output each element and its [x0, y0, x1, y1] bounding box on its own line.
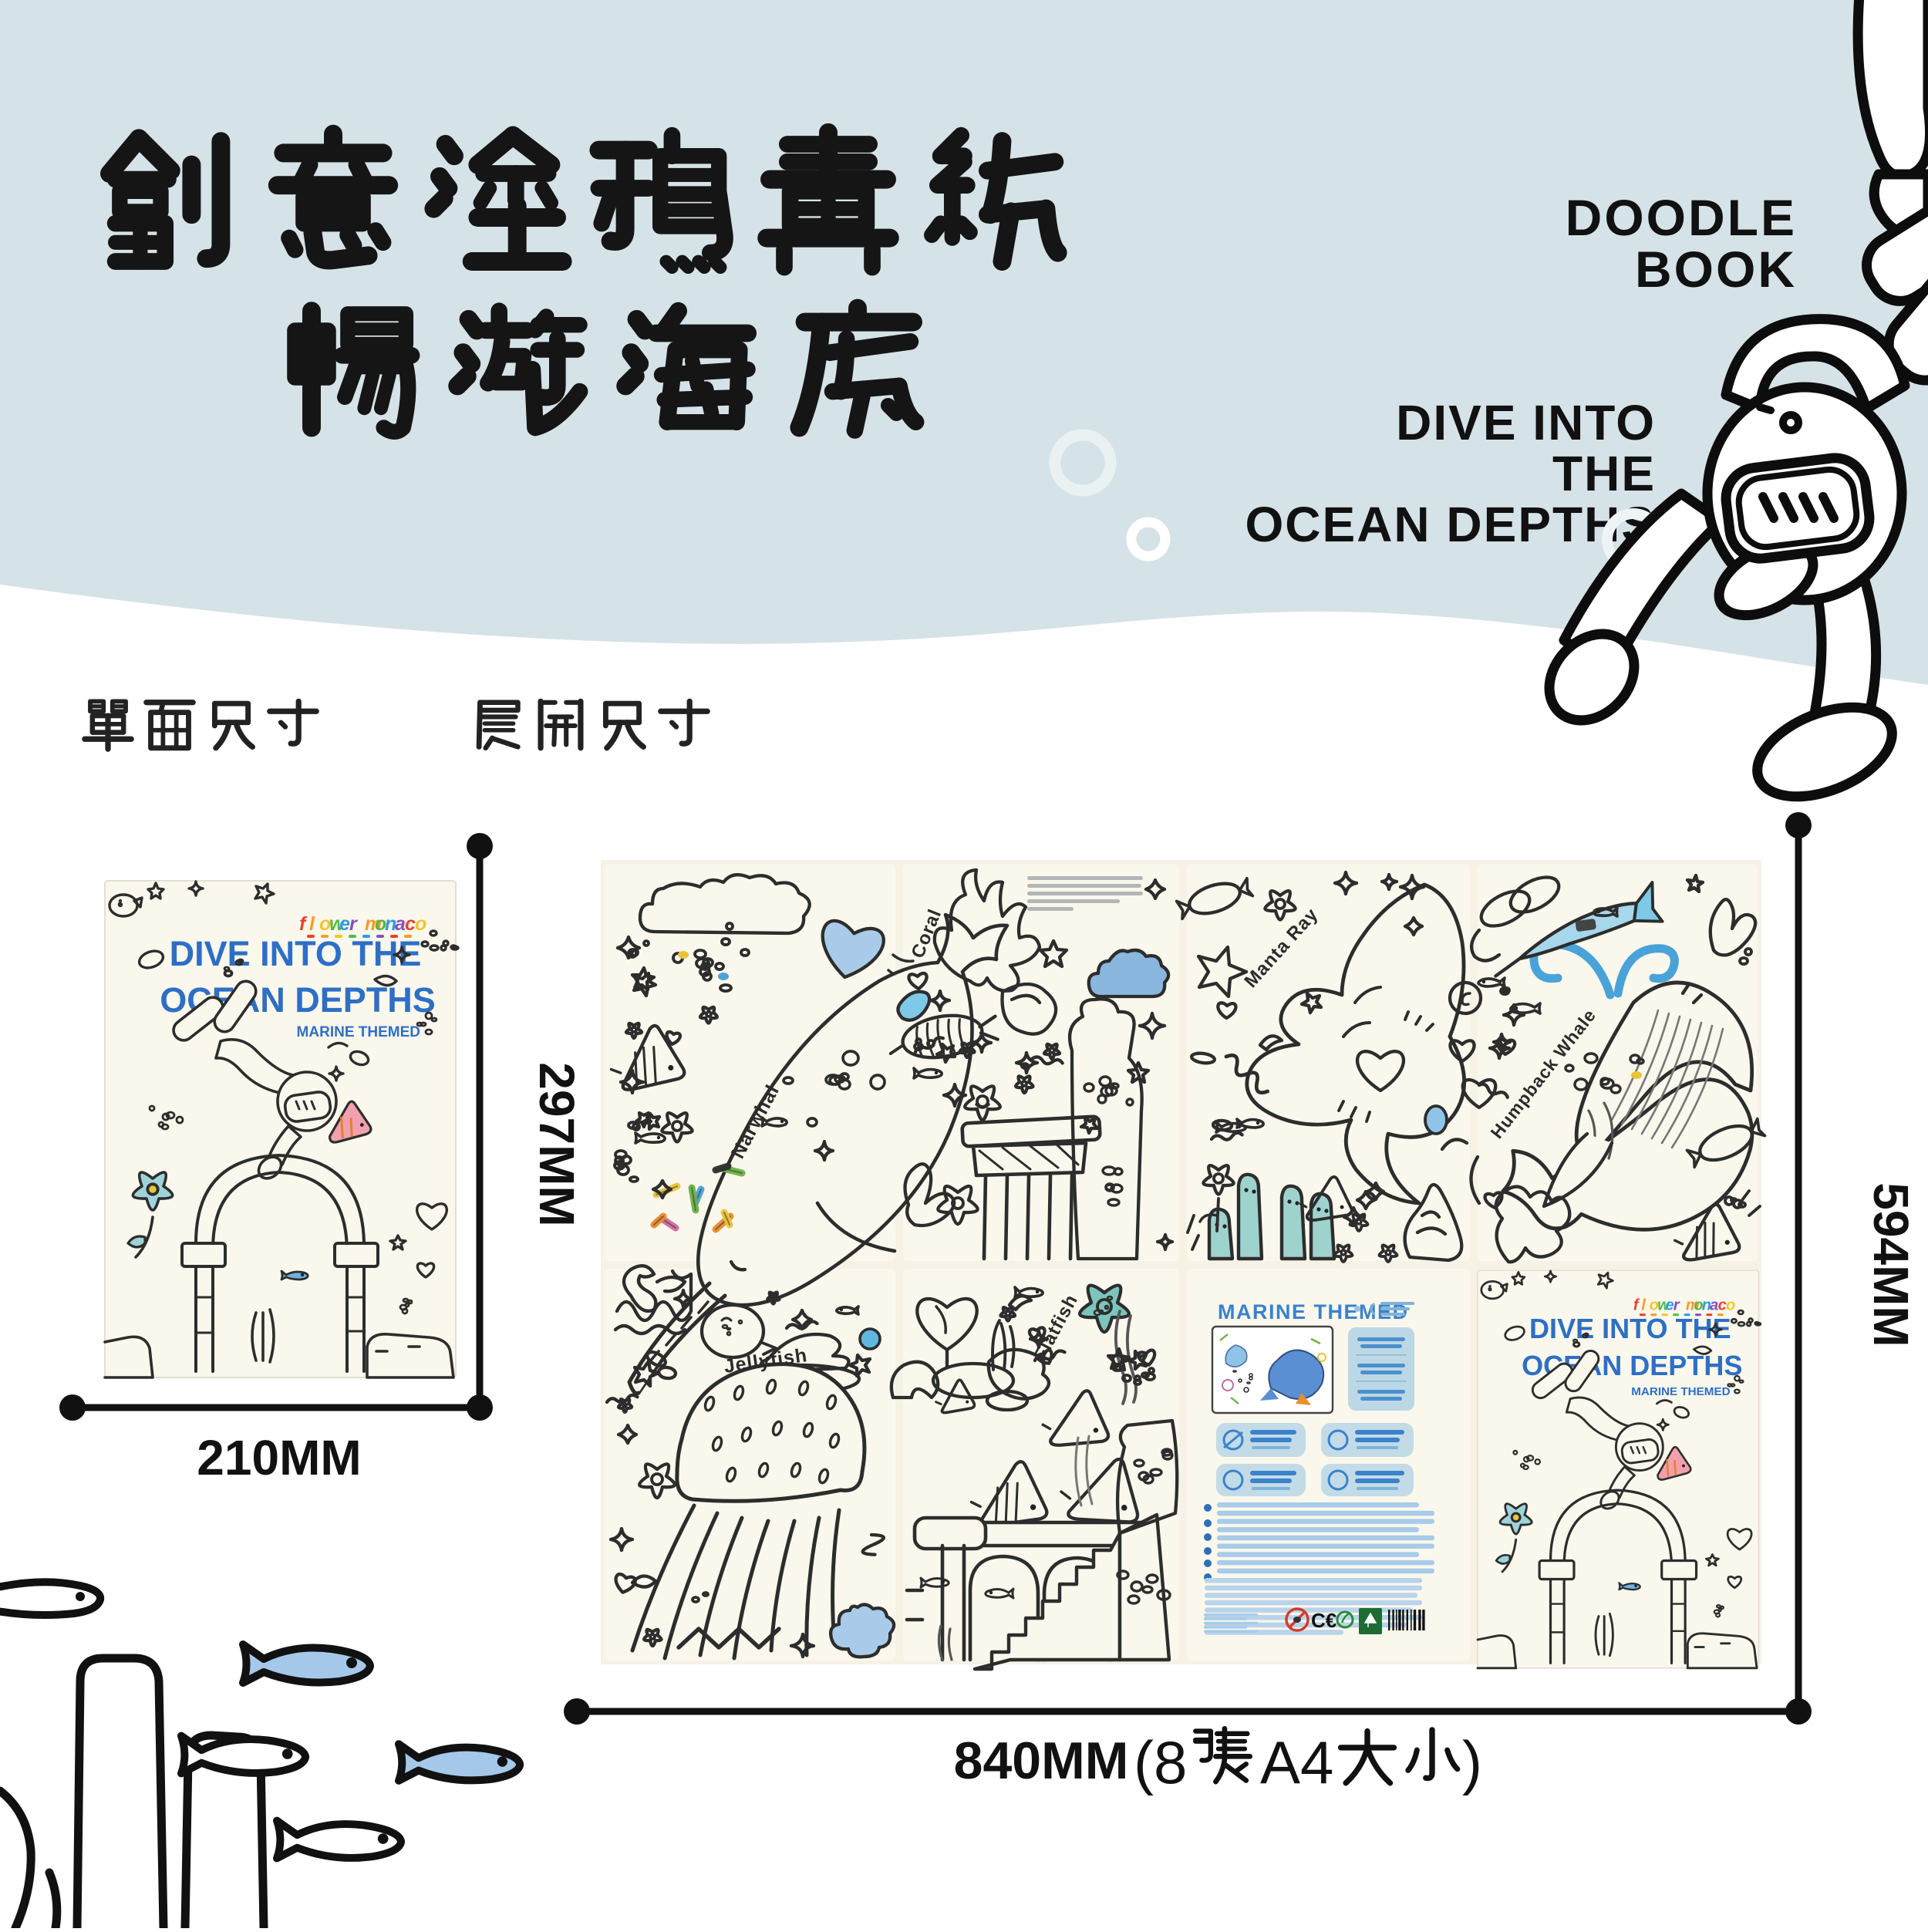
- svg-text:BOOK: BOOK: [1635, 241, 1797, 298]
- svg-text:THE: THE: [1552, 446, 1656, 501]
- svg-text:MARINE THEMED: MARINE THEMED: [1218, 1300, 1409, 1323]
- svg-text:e: e: [1666, 1296, 1674, 1313]
- svg-text:840MM: 840MM: [954, 1731, 1129, 1790]
- svg-text:C€: C€: [1311, 1609, 1336, 1632]
- svg-text:c: c: [1718, 1296, 1727, 1313]
- svg-text:DIVE INTO THE: DIVE INTO THE: [1529, 1313, 1731, 1344]
- svg-text:o: o: [1726, 1296, 1735, 1313]
- svg-text:a: a: [395, 913, 406, 935]
- svg-text:a: a: [1710, 1296, 1718, 1313]
- svg-text:(8: (8: [1134, 1728, 1187, 1796]
- svg-text:r: r: [349, 913, 358, 935]
- svg-text:l: l: [1641, 1296, 1646, 1313]
- svg-text:c: c: [405, 913, 416, 935]
- svg-text:MARINE THEMED: MARINE THEMED: [297, 1024, 420, 1040]
- svg-text:A4: A4: [1260, 1728, 1333, 1796]
- svg-text:DIVE INTO THE: DIVE INTO THE: [170, 934, 422, 973]
- svg-text:r: r: [1674, 1296, 1680, 1313]
- svg-text:297MM: 297MM: [529, 1062, 585, 1226]
- svg-text:e: e: [339, 913, 350, 935]
- svg-text:DOODLE: DOODLE: [1566, 189, 1797, 246]
- svg-text:): ): [1462, 1728, 1482, 1796]
- svg-text:l: l: [309, 913, 315, 935]
- svg-text:o: o: [415, 913, 426, 935]
- svg-text:MARINE THEMED: MARINE THEMED: [1631, 1385, 1730, 1398]
- svg-text:DIVE INTO: DIVE INTO: [1396, 395, 1656, 450]
- svg-text:210MM: 210MM: [197, 1430, 361, 1485]
- svg-text:OCEAN DEPTHS: OCEAN DEPTHS: [1245, 497, 1657, 552]
- svg-text:594MM: 594MM: [1863, 1182, 1919, 1347]
